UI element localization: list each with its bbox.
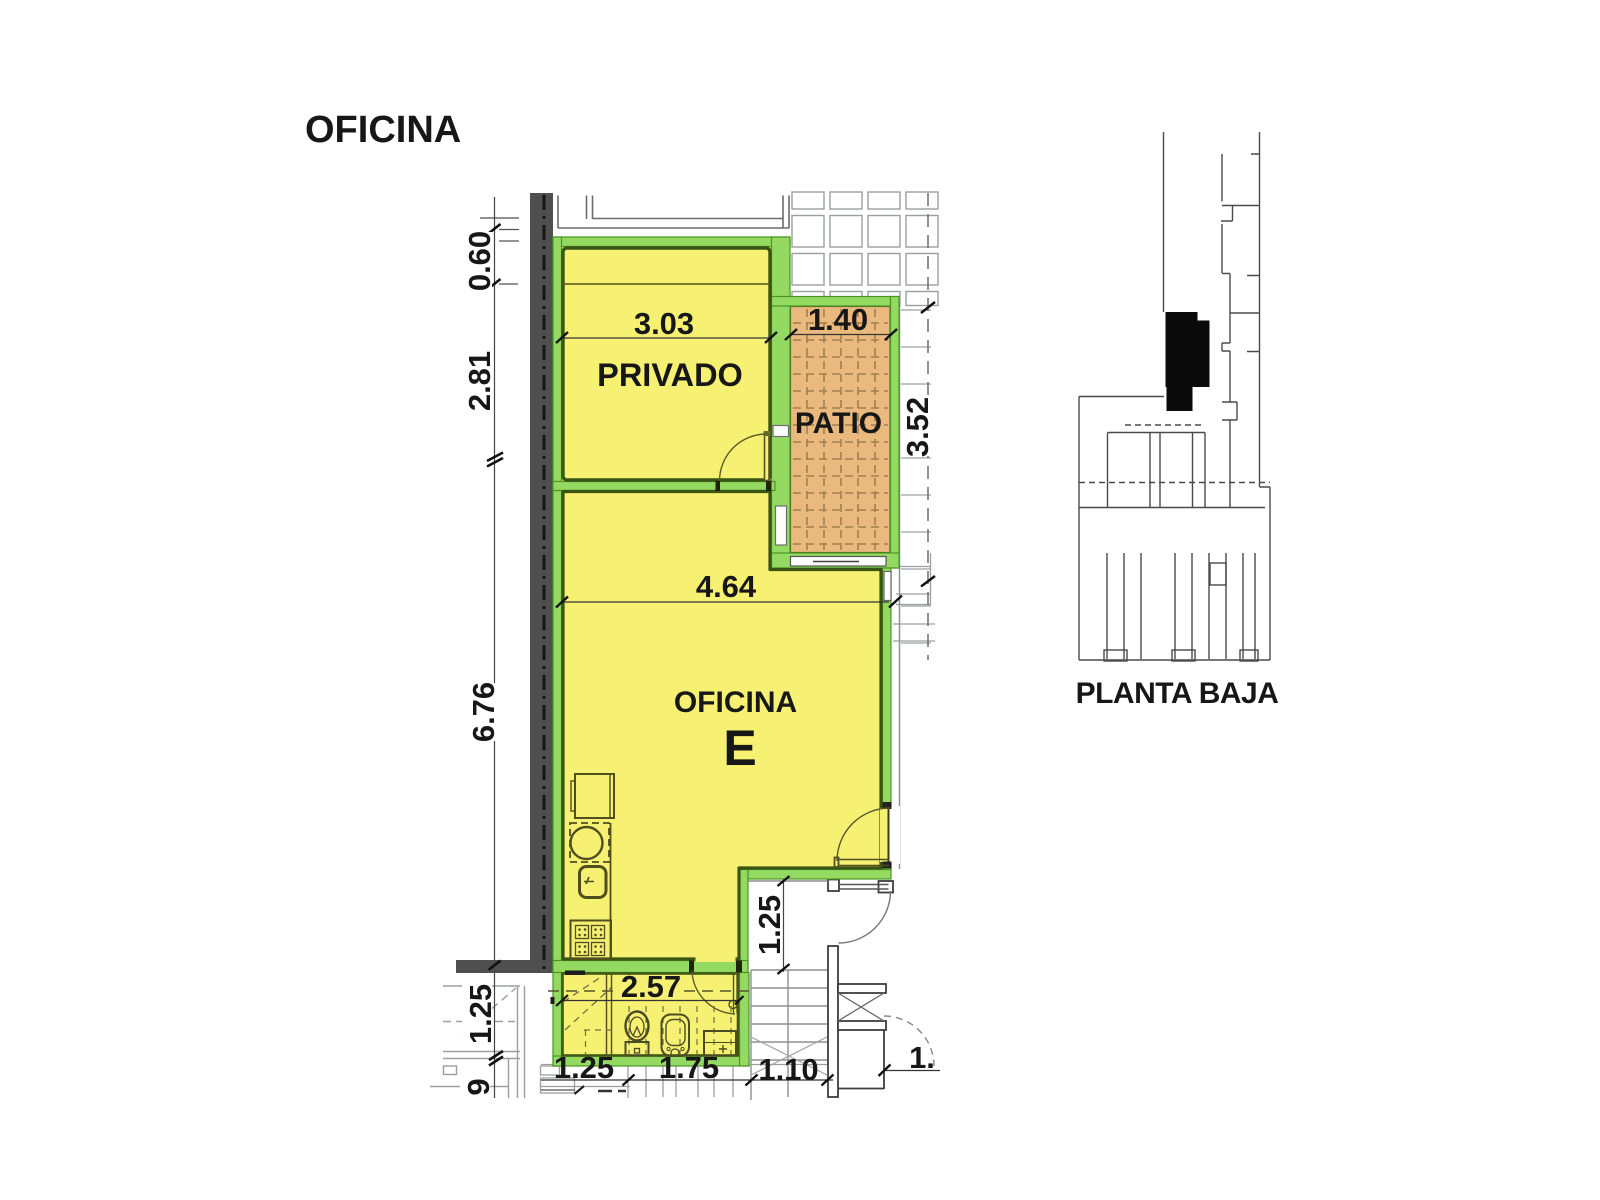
svg-text:1.40: 1.40 bbox=[808, 302, 868, 337]
svg-text:0.60: 0.60 bbox=[462, 231, 497, 291]
svg-text:2.57: 2.57 bbox=[621, 969, 681, 1004]
svg-text:3.03: 3.03 bbox=[634, 306, 694, 341]
svg-text:9: 9 bbox=[461, 1078, 496, 1095]
svg-text:E: E bbox=[723, 720, 756, 776]
svg-text:1.75: 1.75 bbox=[659, 1050, 719, 1085]
svg-text:6.76: 6.76 bbox=[466, 682, 501, 742]
svg-text:PRIVADO: PRIVADO bbox=[597, 357, 743, 393]
svg-text:1.10: 1.10 bbox=[758, 1052, 818, 1087]
svg-text:PLANTA BAJA: PLANTA BAJA bbox=[1076, 677, 1279, 710]
svg-text:1.25: 1.25 bbox=[752, 895, 787, 955]
svg-text:1.25: 1.25 bbox=[554, 1050, 614, 1085]
svg-text:2.81: 2.81 bbox=[462, 351, 497, 411]
svg-text:PATIO: PATIO bbox=[795, 407, 882, 440]
svg-text:OFICINA: OFICINA bbox=[305, 109, 461, 151]
svg-text:1.25: 1.25 bbox=[463, 984, 498, 1044]
svg-text:4.64: 4.64 bbox=[696, 569, 757, 604]
svg-text:OFICINA: OFICINA bbox=[674, 686, 797, 719]
svg-text:3.52: 3.52 bbox=[900, 397, 935, 457]
svg-text:1.: 1. bbox=[909, 1040, 935, 1075]
